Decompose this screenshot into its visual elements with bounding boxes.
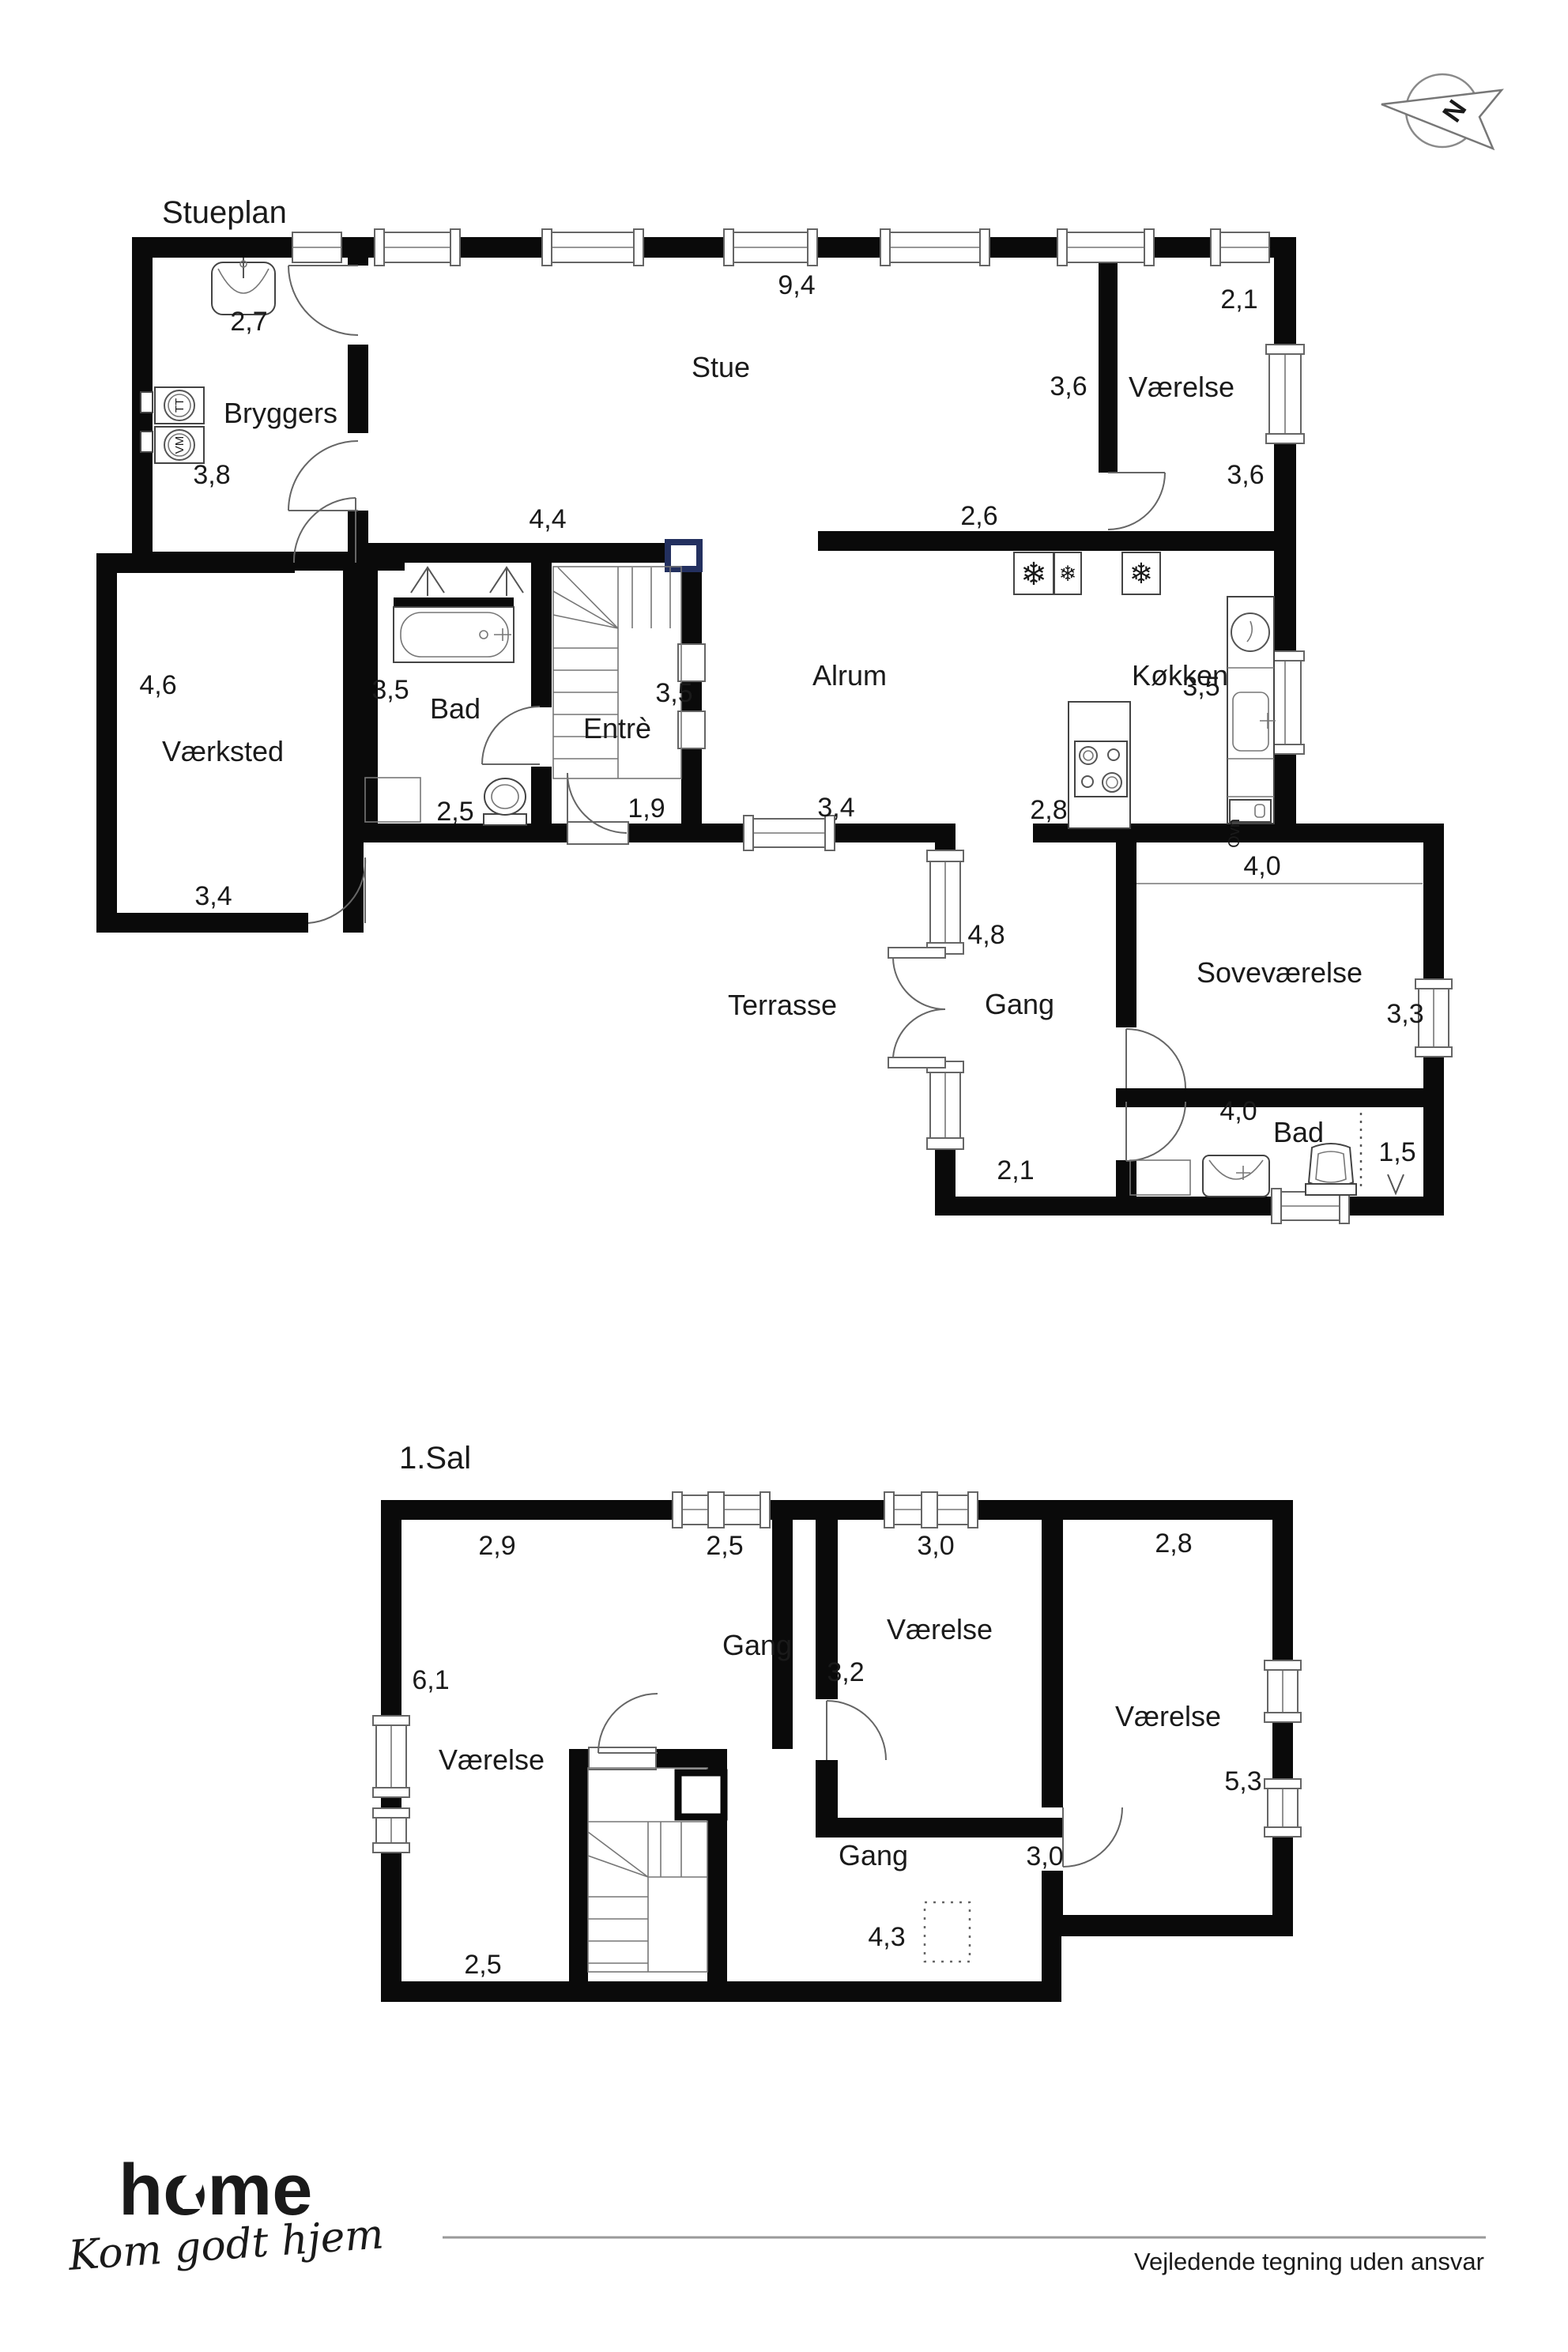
- stairs-icon: [553, 567, 681, 778]
- loft-hatch: [925, 1902, 970, 1962]
- svg-text:❄: ❄: [1020, 557, 1047, 592]
- room-label-vaerksted: Værksted: [162, 735, 284, 767]
- room-label-bad2: Bad: [1273, 1116, 1324, 1148]
- measure: 3,4: [194, 881, 232, 911]
- svg-text:❄: ❄: [1129, 557, 1153, 590]
- room-label-bad: Bad: [430, 692, 481, 725]
- measure: 4,0: [1219, 1096, 1257, 1126]
- measure: 2,7: [230, 307, 267, 337]
- room-label-terrasse: Terrasse: [728, 989, 837, 1021]
- measure: 3,0: [917, 1531, 954, 1561]
- measure: 2,6: [960, 501, 997, 531]
- ground-floor-windows: [292, 229, 1452, 1223]
- room-label-vaerelse: Værelse: [1129, 371, 1234, 403]
- measure: 6,1: [412, 1665, 449, 1695]
- measure: 9,4: [778, 270, 815, 300]
- drain-arrow-icon: [1388, 1174, 1404, 1193]
- measure: 1,5: [1378, 1137, 1415, 1167]
- svg-text:❄: ❄: [1059, 562, 1077, 586]
- measure: 3,2: [827, 1657, 864, 1687]
- oven-label: Ovn: [1226, 819, 1243, 848]
- toilet-icon: [484, 778, 526, 825]
- footer: home Kom godt hjem Vejledende tegning ud…: [66, 2150, 1486, 2280]
- room-label-stue: Stue: [692, 351, 750, 383]
- measure: 2,9: [478, 1531, 515, 1561]
- room-label-alrum: Alrum: [812, 659, 887, 692]
- washer-label: VM: [173, 436, 187, 454]
- measure: 5,3: [1224, 1766, 1261, 1796]
- measure: 2,8: [1155, 1528, 1192, 1559]
- first-floor-title: 1.Sal: [399, 1441, 471, 1476]
- room-label-bryggers: Bryggers: [224, 397, 337, 429]
- measure: 2,5: [706, 1531, 743, 1561]
- measure: 2,8: [1030, 795, 1067, 825]
- measure: 1,9: [628, 793, 665, 824]
- room-label-entre: Entrè: [583, 712, 651, 744]
- measure: 4,0: [1243, 851, 1280, 881]
- room-label-gang2: Gang: [839, 1839, 908, 1871]
- measure: 2,5: [436, 797, 473, 827]
- measure: 3,8: [193, 460, 230, 490]
- measure: 3,5: [371, 675, 409, 705]
- measure: 3,6: [1050, 371, 1087, 401]
- room-label-vaerelse2: Værelse: [887, 1613, 993, 1645]
- french-door: [888, 948, 945, 1068]
- stove-icon: [1069, 702, 1130, 828]
- kitchen-counter: Ovn: [1226, 597, 1276, 848]
- measure: 2,1: [1220, 285, 1257, 315]
- toilet-icon: [1306, 1144, 1356, 1195]
- stair-marker: [668, 542, 699, 569]
- fridge-icon: ❄ ❄: [1014, 552, 1081, 594]
- keyhole-icon: [182, 2174, 202, 2209]
- room-label-vaerelse1: Værelse: [439, 1743, 545, 1776]
- cabinet: [1130, 1160, 1190, 1195]
- sink-icon: [1203, 1155, 1269, 1197]
- brand-tagline: Kom godt hjem: [66, 2211, 386, 2280]
- measure: 4,3: [868, 1922, 905, 1952]
- floorplan-page: N: [0, 0, 1568, 2352]
- measure: 4,4: [529, 504, 566, 534]
- compass-north-icon: N: [1381, 74, 1502, 149]
- measure: 3,0: [1026, 1841, 1063, 1871]
- measure: 4,8: [967, 920, 1004, 950]
- disclaimer-text: Vejledende tegning uden ansvar: [1134, 2248, 1484, 2275]
- measure: 3,6: [1227, 460, 1264, 490]
- freezer-icon: ❄: [1122, 552, 1160, 594]
- room-label-gang: Gang: [985, 988, 1054, 1020]
- ground-floor-title: Stueplan: [162, 195, 287, 230]
- measure: 4,6: [139, 670, 176, 700]
- measure: 3,5: [655, 678, 692, 708]
- room-label-sovevaerelse: Soveværelse: [1197, 956, 1363, 989]
- wardrobe-icon: [411, 567, 523, 596]
- dryer-label: TT: [173, 398, 187, 413]
- bathtub-icon: [394, 597, 514, 662]
- measure: 3,4: [817, 793, 854, 823]
- room-label-vaerelse3: Værelse: [1115, 1700, 1221, 1732]
- measure: 3,5: [1182, 672, 1219, 702]
- room-label-gang1: Gang: [722, 1629, 792, 1661]
- stairs-icon: [588, 1768, 724, 1972]
- measure: 2,1: [997, 1155, 1034, 1185]
- measure: 3,3: [1386, 999, 1423, 1029]
- measure: 2,5: [464, 1950, 501, 1980]
